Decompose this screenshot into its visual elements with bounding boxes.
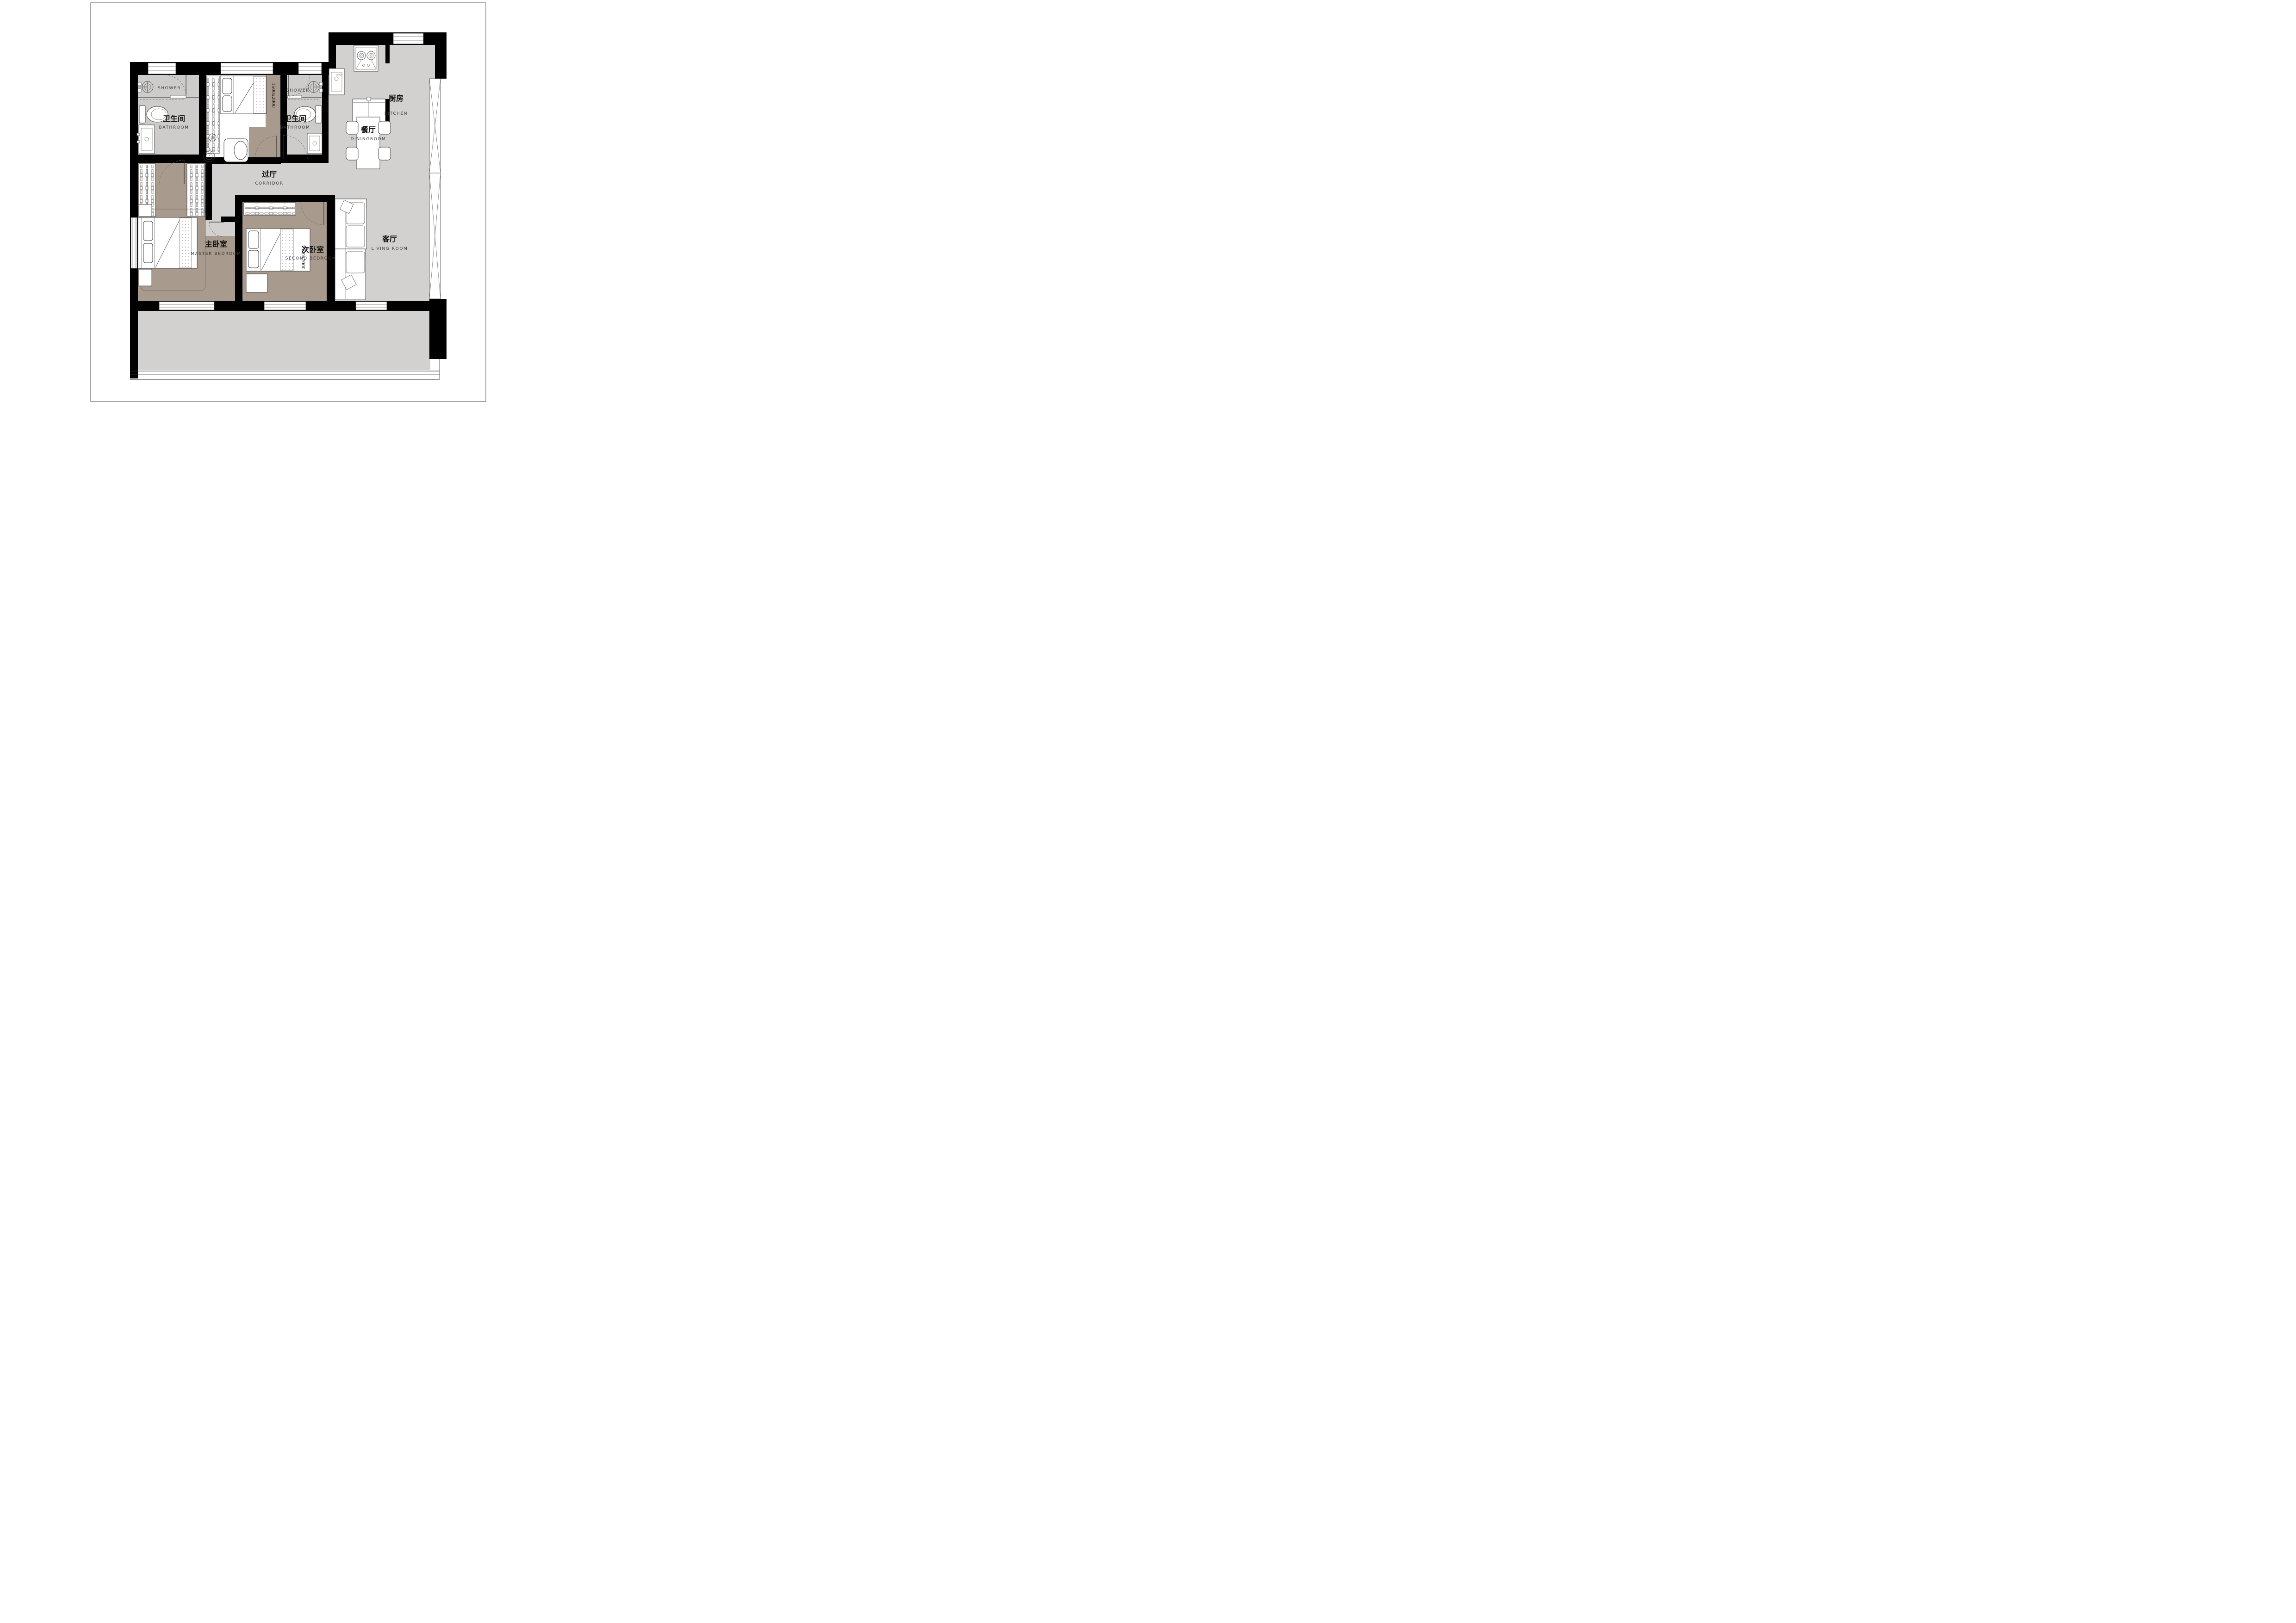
window-second-south [264,302,306,310]
shower-sliding-door [170,95,186,98]
bed-size-label-north: 1500x2000 [271,83,276,108]
wall-second-bedroom-north [235,195,327,202]
kitchen-label-en: KITCHEN [385,112,408,116]
master-bedroom-label-zh: 主卧室 [205,240,227,248]
shower-sliding-door-2 [288,95,302,98]
floorplan-drawing: 1500x2000 [0,0,574,406]
wardrobe-master-right [187,164,205,217]
window-kitchen [393,33,423,44]
shower-left-label: SHOWER [158,86,181,91]
nightstand-bottom [139,269,152,286]
window-master-south [159,302,214,310]
wall-north-kitchen [329,32,447,45]
living-label-en: LIVING ROOM [372,247,408,251]
bathroom-left-label-en: BATHROOM [159,125,189,130]
wardrobe-icon [207,76,219,154]
kitchen-label-zh: 厨房 [389,94,403,103]
dining-table-icon [357,117,380,169]
bed-master-icon [138,217,197,268]
balcony-floor [138,311,430,370]
nightstand-second [246,274,267,292]
second-bedroom-label-zh: 次卧室 [302,245,324,254]
sofa-icon [335,199,366,300]
living-label-zh: 客厅 [382,235,397,243]
window-bath-left [148,63,176,74]
window-master-west [131,217,137,268]
wall-bath-left-south [138,155,199,163]
window-bath-right [298,63,322,74]
vanity-sink [137,125,155,154]
second-bedroom-label-en: SECOND BEDROOM [285,256,337,261]
bathroom-right-label-en: BATHROOM [280,125,310,130]
bathroom-right-label-zh: 卫生间 [284,114,306,123]
wall-second-bedroom-west [235,195,242,301]
window-living-south [356,302,387,310]
wall-master-door-stub [221,217,235,222]
wall-bath-left-east [199,75,206,163]
dining-label-zh: 餐厅 [360,125,376,134]
stove-icon [354,45,378,71]
wardrobe-second [244,203,296,215]
wall-bath-right-east [322,75,329,163]
corridor-label-zh: 过厅 [262,170,277,179]
bathroom-left-label-zh: 卫生间 [163,114,185,123]
window-north-bedroom [221,63,273,74]
wall-east-kitchen [435,45,447,79]
armchair-icon [224,139,248,162]
floorplan-page: 1500x2000 [0,0,574,406]
wall-kitchen-stub-ne [385,45,390,63]
kitchen-sink-icon [329,68,344,95]
bed-north-icon [220,76,267,114]
wall-bath-right-south [280,155,329,163]
shower-right-label: SHOWER [286,88,310,93]
wall-second-bedroom-east [327,195,335,301]
dining-label-en: DININGROOM [351,137,386,142]
window-east-glazing [429,79,441,299]
wall-master-east-stub [205,163,212,220]
nightstand-top [139,204,152,217]
corridor-label-en: CORRIDOR [255,181,284,186]
vanity-sink-2 [307,133,322,154]
master-bedroom-label-en: MASTER BEDROOM [191,252,241,256]
